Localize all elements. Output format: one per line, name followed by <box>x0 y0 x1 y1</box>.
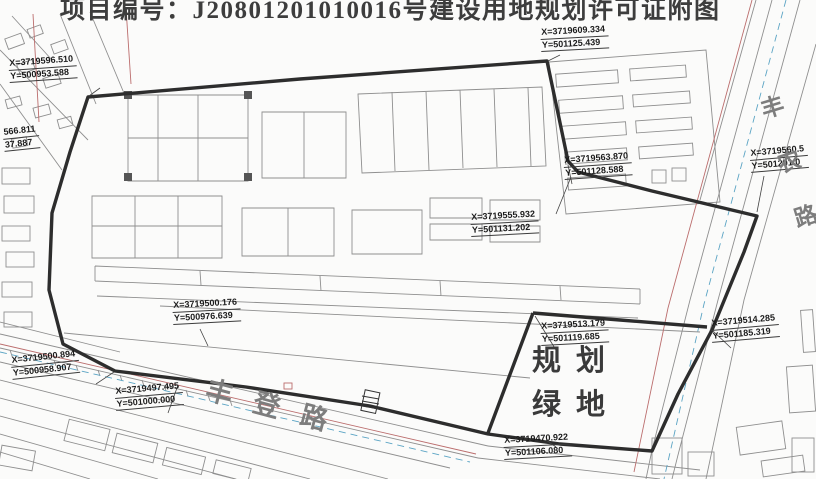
survey-red-lines <box>0 0 752 472</box>
green-space-label-line2: 绿地 <box>532 384 620 428</box>
green-space-label-line1: 规划 <box>532 340 620 384</box>
coordinate-label-mid-center: X=3719555.932Y=501131.202 <box>470 208 539 237</box>
page-title: 项目编号：J20801201010016号建设用地规划许可证附图 <box>60 0 721 26</box>
coordinate-label-north-corner: X=3719609.334Y=501125.439 <box>540 23 609 52</box>
building-corner-marks <box>124 91 252 181</box>
planning-map-canvas: 项目编号：J20801201010016号建设用地规划许可证附图 X=37195… <box>0 0 816 479</box>
green-space-label: 规划 绿地 <box>532 340 620 427</box>
coordinate-label-south-point: X=3719470.922Y=501106.080 <box>503 431 572 460</box>
coordinate-label-nw-corner: X=3719596.510Y=500953.588 <box>8 53 77 83</box>
coordinate-label-west-edge-clipped: 566.81137.887 <box>2 123 41 152</box>
coordinate-label-mid-east-upper: X=3719563.870Y=501128.588 <box>563 150 632 180</box>
coordinate-label-mid-west: X=3719500.176Y=500976.639 <box>172 296 241 325</box>
gate-hatch-marker <box>361 390 380 414</box>
